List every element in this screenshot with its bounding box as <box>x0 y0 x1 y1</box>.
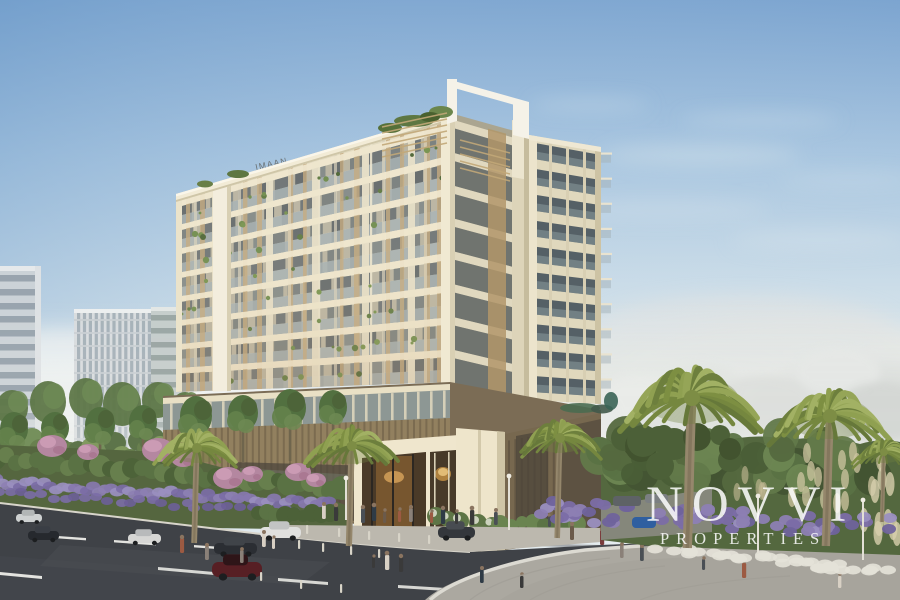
svg-text:NOVVI: NOVVI <box>646 477 855 533</box>
svg-text:PROPERTIES: PROPERTIES <box>660 529 826 548</box>
